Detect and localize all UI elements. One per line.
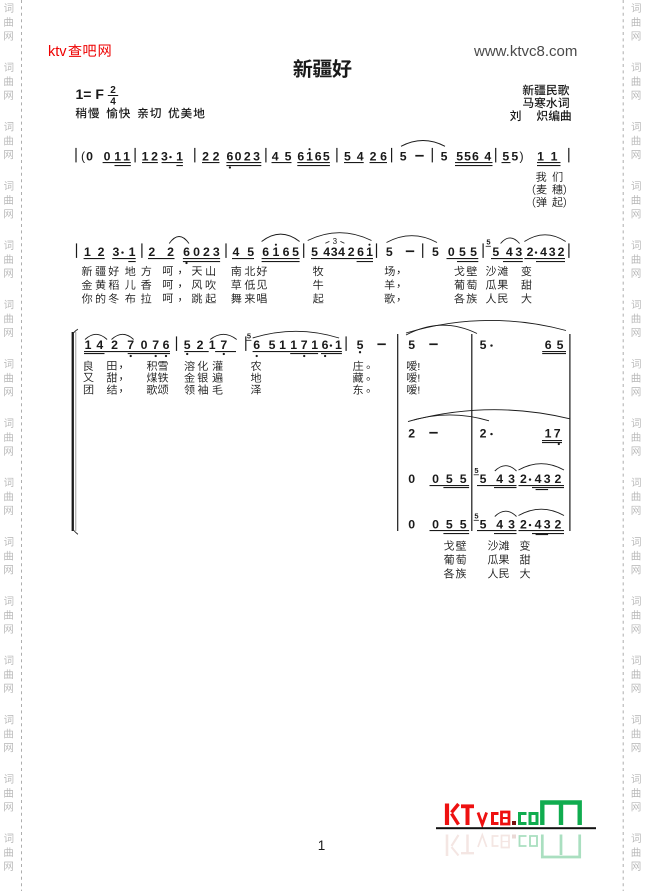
svg-text:5: 5: [480, 518, 487, 532]
svg-text:2: 2: [370, 150, 377, 164]
svg-text:5: 5: [474, 466, 478, 475]
svg-text:2: 2: [348, 245, 355, 259]
svg-text:5: 5: [480, 338, 487, 352]
svg-text:1: 1: [335, 338, 342, 352]
svg-text:2: 2: [202, 150, 209, 164]
svg-text:6: 6: [283, 245, 290, 259]
svg-text:5: 5: [511, 150, 518, 164]
svg-text:0: 0: [193, 245, 200, 259]
svg-text:4: 4: [535, 472, 542, 486]
svg-text:5: 5: [486, 238, 490, 247]
svg-text:1: 1: [85, 338, 92, 352]
svg-text:7: 7: [220, 338, 227, 352]
svg-text:6: 6: [545, 338, 552, 352]
svg-text:5: 5: [460, 518, 467, 532]
svg-text:3: 3: [544, 472, 551, 486]
svg-text:5: 5: [408, 338, 415, 352]
svg-text:3: 3: [253, 150, 260, 164]
svg-text:4: 4: [323, 245, 330, 259]
svg-text:1: 1: [142, 150, 149, 164]
svg-text:4: 4: [540, 245, 547, 259]
svg-text:4: 4: [272, 150, 279, 164]
svg-text:5: 5: [474, 512, 478, 521]
svg-text:6: 6: [262, 245, 269, 259]
svg-text:5: 5: [459, 245, 466, 259]
svg-text:5: 5: [323, 150, 330, 164]
svg-text:0: 0: [104, 150, 111, 164]
svg-text:1: 1: [279, 338, 286, 352]
svg-text:2: 2: [203, 245, 210, 259]
svg-text:5: 5: [446, 472, 453, 486]
svg-text:0: 0: [141, 338, 148, 352]
svg-text:5: 5: [184, 338, 191, 352]
svg-text:7: 7: [152, 338, 159, 352]
svg-text:1: 1: [129, 245, 136, 259]
svg-text:5: 5: [247, 332, 251, 341]
svg-text:2: 2: [520, 518, 527, 532]
svg-text:5: 5: [247, 245, 254, 259]
svg-text:6: 6: [183, 245, 190, 259]
svg-text:5: 5: [432, 245, 439, 259]
svg-text:3: 3: [331, 245, 338, 259]
svg-text:5: 5: [470, 245, 477, 259]
svg-text:6: 6: [357, 245, 364, 259]
svg-text:0: 0: [432, 472, 439, 486]
svg-text:2: 2: [197, 338, 204, 352]
svg-text:5: 5: [269, 338, 276, 352]
svg-text:6: 6: [163, 338, 170, 352]
svg-text:7: 7: [301, 338, 308, 352]
svg-text:1: 1: [366, 245, 373, 259]
svg-text:!: !: [417, 385, 420, 397]
svg-text:6: 6: [253, 338, 260, 352]
svg-text:1: 1: [537, 150, 544, 164]
svg-text:6: 6: [380, 150, 387, 164]
svg-text:4: 4: [484, 150, 491, 164]
svg-text:5: 5: [292, 245, 299, 259]
svg-text:5: 5: [460, 472, 467, 486]
svg-text:3: 3: [508, 472, 515, 486]
svg-text:5: 5: [492, 245, 499, 259]
svg-text:1: 1: [272, 245, 279, 259]
svg-text:4: 4: [496, 518, 503, 532]
svg-text:5: 5: [446, 518, 453, 532]
svg-text:5: 5: [480, 472, 487, 486]
svg-text:5: 5: [400, 150, 407, 164]
svg-text:2: 2: [558, 245, 565, 259]
svg-text:1: 1: [176, 150, 183, 164]
svg-text:6: 6: [472, 150, 479, 164]
svg-text:4: 4: [535, 518, 542, 532]
svg-text:5: 5: [456, 150, 463, 164]
svg-text:5: 5: [311, 245, 318, 259]
svg-text:2: 2: [554, 518, 561, 532]
svg-text:1: 1: [318, 838, 326, 853]
svg-text:2: 2: [111, 338, 118, 352]
svg-text:): ): [519, 150, 523, 164]
svg-text:4: 4: [232, 245, 239, 259]
svg-text:1: 1: [290, 338, 297, 352]
svg-text:1: 1: [123, 150, 130, 164]
svg-text:0: 0: [432, 518, 439, 532]
svg-text:2: 2: [148, 245, 155, 259]
svg-text:4: 4: [110, 97, 116, 108]
svg-text:1: 1: [306, 150, 313, 164]
svg-text:6: 6: [226, 150, 233, 164]
svg-text:5: 5: [344, 150, 351, 164]
svg-text:6: 6: [297, 150, 304, 164]
svg-text:2: 2: [244, 150, 251, 164]
svg-text:4: 4: [506, 245, 513, 259]
svg-text:!: !: [417, 373, 420, 385]
svg-text:4: 4: [338, 245, 345, 259]
svg-text:3: 3: [112, 245, 119, 259]
svg-text:1: 1: [84, 245, 91, 259]
svg-text:7: 7: [127, 338, 134, 352]
svg-text:2: 2: [527, 245, 534, 259]
svg-text:0: 0: [408, 472, 415, 486]
svg-text:ktv: ktv: [48, 44, 67, 60]
svg-text:1: 1: [114, 150, 121, 164]
svg-text:0: 0: [86, 150, 93, 164]
svg-text:2: 2: [151, 150, 158, 164]
svg-text:3: 3: [213, 245, 220, 259]
svg-text:0: 0: [448, 245, 455, 259]
svg-text:4: 4: [357, 150, 364, 164]
svg-text:www.ktvc8.com: www.ktvc8.com: [473, 43, 577, 60]
svg-text:3: 3: [161, 150, 168, 164]
svg-text:5: 5: [285, 150, 292, 164]
svg-text:2: 2: [408, 427, 415, 441]
svg-text:6: 6: [322, 338, 329, 352]
svg-text:3: 3: [549, 245, 556, 259]
svg-text:5: 5: [557, 338, 564, 352]
svg-text:5: 5: [441, 150, 448, 164]
svg-text:5: 5: [464, 150, 471, 164]
svg-text:0: 0: [408, 518, 415, 532]
svg-text:5: 5: [502, 150, 509, 164]
svg-text:2: 2: [167, 245, 174, 259]
svg-text:1: 1: [209, 338, 216, 352]
svg-text:3: 3: [515, 245, 522, 259]
svg-text:7: 7: [554, 427, 561, 441]
svg-text:!: !: [417, 361, 420, 373]
svg-text:1: 1: [551, 150, 558, 164]
svg-text:3: 3: [508, 518, 515, 532]
svg-text:1= F: 1= F: [76, 86, 105, 102]
svg-text:4: 4: [96, 338, 103, 352]
svg-text:5: 5: [386, 245, 393, 259]
svg-text:2: 2: [213, 150, 220, 164]
svg-text:1: 1: [311, 338, 318, 352]
svg-text:0: 0: [235, 150, 242, 164]
svg-text:2: 2: [480, 427, 487, 441]
svg-text:6: 6: [315, 150, 322, 164]
svg-text:1: 1: [545, 427, 552, 441]
svg-text:2: 2: [110, 85, 116, 96]
svg-text:5: 5: [357, 338, 364, 352]
svg-text:2: 2: [98, 245, 105, 259]
svg-text:4: 4: [496, 472, 503, 486]
svg-text:3: 3: [544, 518, 551, 532]
svg-text:2: 2: [554, 472, 561, 486]
svg-text:3: 3: [333, 237, 338, 246]
svg-text:2: 2: [520, 472, 527, 486]
